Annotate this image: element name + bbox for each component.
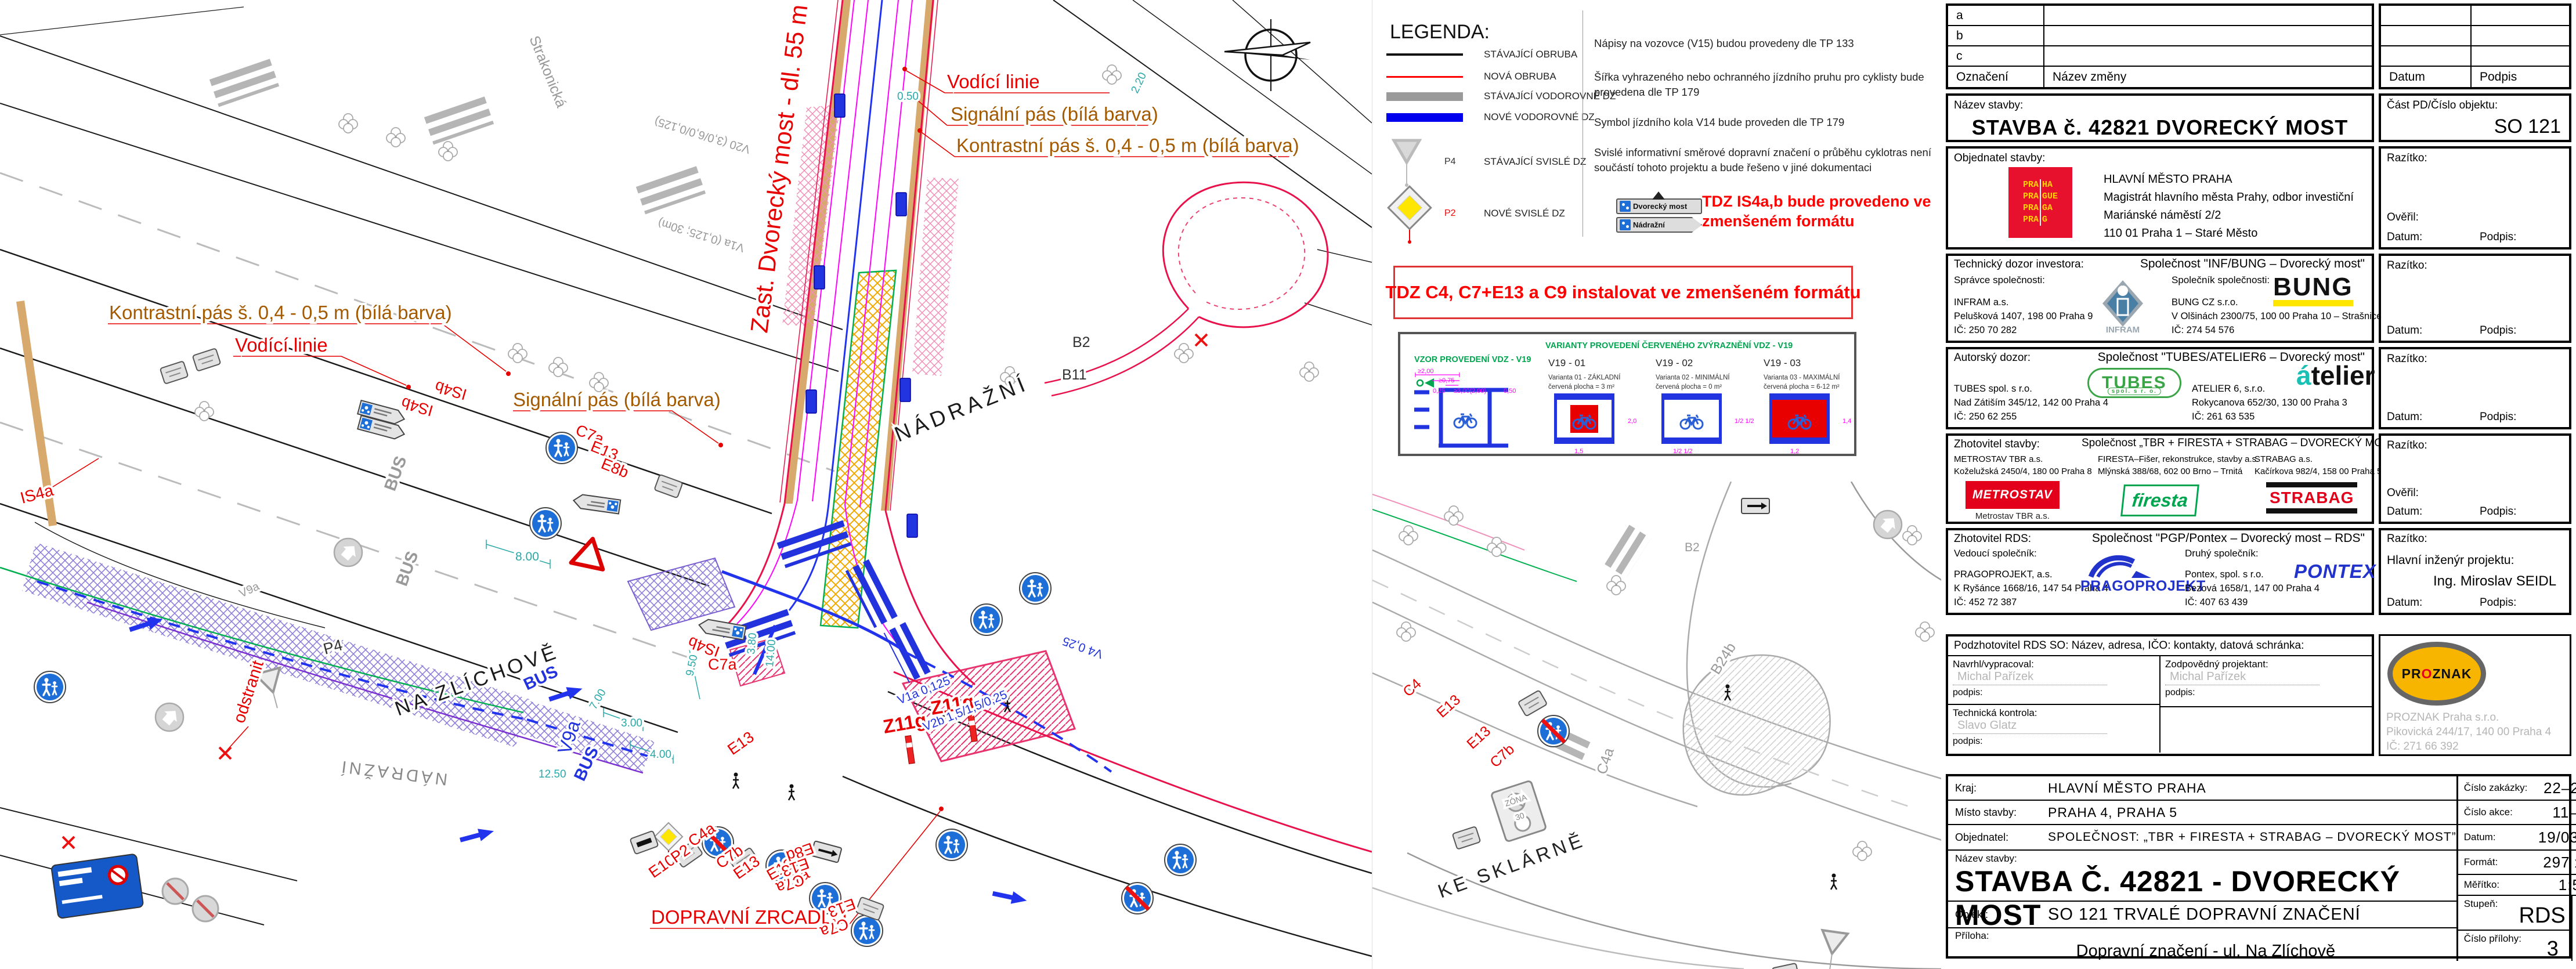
metrostav-logo: METROSTAV Metrostav TBR a.s.	[1966, 481, 2060, 521]
change-row-id: c	[1948, 46, 2044, 66]
traffic-sign-ped-icon	[971, 604, 1002, 635]
traffic-sign-pedx-icon	[1122, 883, 1153, 914]
variant-02-diagram	[1656, 393, 1731, 451]
traffic-sign-plate-icon	[193, 348, 221, 371]
traffic-sign-plate2-icon	[630, 831, 658, 855]
signature-label: Podpis:	[2480, 231, 2516, 244]
object-number: SO 121	[2494, 115, 2561, 138]
stamp-label: Razítko:	[2387, 259, 2427, 272]
traffic-sign-pedx-icon	[1538, 715, 1569, 747]
traffic-sign-redtri-icon	[571, 536, 609, 570]
traffic-sign-ped-icon	[936, 829, 967, 860]
drawing-label: C7b	[1487, 741, 1518, 771]
second-partner-label: Druhý společník:	[2185, 548, 2259, 559]
traffic-sign-tree-icon	[1300, 362, 1318, 381]
existing-curb-line-swatch	[1386, 53, 1463, 56]
drawing-label: odstranit	[230, 658, 268, 725]
info-sign-blue	[51, 854, 143, 919]
drawing-label: B2	[1072, 334, 1090, 350]
variant-desc: červená plocha = 3 m²	[1548, 383, 1614, 392]
sample-dim: ≥3,00(2,00)	[1454, 388, 1486, 395]
new-horizontal-swatch	[1386, 113, 1463, 122]
legend-title: LEGENDA:	[1390, 21, 1490, 44]
traffic-sign-man-icon	[789, 784, 794, 801]
note-cycle-lane-width: Šířka vyhrazeného nebo ochranného jízdní…	[1594, 70, 1934, 100]
drawing-label: B2	[1685, 541, 1700, 554]
v19-sample-title: VZOR PROVEDENÍ VDZ - V19	[1414, 355, 1531, 364]
title-block-panel: a b c OznačeníNázev změny DatumPodpis Ná…	[1941, 0, 2576, 969]
drawing-label: C4a	[1594, 746, 1617, 776]
firm-line: IČ: 261 63 535	[2192, 410, 2347, 424]
drawing-label: BUS	[381, 454, 411, 493]
firm-line: IČ: 274 54 576	[2172, 323, 2382, 337]
traffic-sign-tree-icon	[1487, 537, 1506, 556]
scale-value: 1:500	[2538, 876, 2576, 894]
date-label: Datum:	[2387, 411, 2422, 424]
drafted-by-label: Navrhl/vypracoval:	[1953, 659, 2155, 670]
traffic-sign-dirgray-icon	[156, 703, 183, 731]
legend-item-new-vertical: P2 NOVÉ SVISLÉ DZ	[1386, 185, 1565, 243]
traffic-sign-xr-icon	[63, 837, 74, 848]
change-row-id: a	[1948, 6, 2044, 25]
drawing-label: E13	[1433, 692, 1464, 721]
traffic-sign-tree-icon	[339, 114, 357, 133]
date-label: Datum:	[2387, 231, 2422, 244]
v19-variants-title: VARIANTY PROVEDENÍ ČERVENÉHO ZVÝRAZNĚNÍ …	[1545, 341, 1793, 350]
bung-logo: BUNG	[2273, 276, 2353, 306]
firm-line: TUBES spol. s r.o.	[1954, 382, 2108, 396]
traffic-sign-plate-icon	[1772, 963, 1800, 969]
client-line: 110 01 Praha 1 – Staré Město	[2104, 225, 2354, 243]
bike-pictogram-icon	[1620, 201, 1631, 212]
verified-label: Ověřil:	[2387, 211, 2419, 224]
technical-check-label: Technická kontrola:	[1953, 707, 2155, 719]
legend-item-existing-horizontal: STÁVAJÍCÍ VODOROVNÉ DZ	[1386, 91, 1616, 102]
traffic-sign-bluerect-icon	[900, 378, 911, 402]
traffic-sign-man-icon	[1831, 874, 1837, 890]
drawing-label: Vodící linie	[947, 71, 1040, 92]
project-name-section: Název stavby: STAVBA č. 42821 DVORECKÝ M…	[1946, 93, 2571, 142]
direction-sign-nadrazni: Nádražní	[1616, 217, 1702, 233]
client2-label: Objednatel:	[1955, 831, 2048, 844]
sample-dim: 0,50	[1504, 388, 1516, 395]
traffic-sign-xr-icon	[219, 747, 231, 759]
client-line: Mariánské náměstí 2/2	[2104, 207, 2354, 225]
change-col-podpis: Podpis	[2472, 67, 2569, 87]
traffic-sign-ped-icon	[530, 508, 561, 539]
traffic-sign-tree-icon	[1903, 526, 1921, 545]
contractor-label: Zhotovitel stavby:	[1954, 438, 2040, 451]
author-supervision-label: Autorský dozor:	[1954, 352, 2031, 364]
firm-line: IČ: 452 72 387	[1954, 595, 2108, 609]
stamp-label: Razítko:	[2387, 152, 2427, 165]
note-v14: Symbol jízdního kola V14 bude proveden d…	[1594, 115, 1934, 130]
variant-code: V19 - 01	[1548, 357, 1585, 369]
note-cycle-routes: Svislé informativní směrové dopravní zna…	[1594, 145, 1934, 175]
object-value: SO 121 TRVALÉ DOPRAVNÍ ZNAČENÍ	[2048, 905, 2361, 924]
drawing-label: Signální pás (bílá barva)	[951, 103, 1158, 125]
firesta-logo: firesta	[2120, 484, 2199, 516]
client-section: Objednatel stavby: PRAHA PRAGUE PRAGA PR…	[1946, 146, 2571, 250]
object-label: Objekt:	[1955, 909, 2048, 921]
tech-supervision-company: Společnost "INF/BUNG – Dvorecký most"	[2140, 257, 2365, 271]
attachment-number-value: 3	[2547, 937, 2559, 961]
traffic-sign-ped-icon	[1020, 573, 1051, 604]
plan-drawing-panel: Vodící linieSignální pás (bílá barva)Kon…	[0, 0, 1372, 969]
partner-label: Společník společnosti:	[2172, 274, 2270, 286]
traffic-sign-arr-icon	[991, 887, 1028, 907]
date-label: Datum:	[2387, 324, 2422, 337]
atelier6-logo: átelier	[2296, 362, 2375, 389]
date2-label: Datum:	[2458, 831, 2538, 843]
responsible-designer-name: Michal Pařízek	[2165, 670, 2320, 685]
drawing-label: Signální pás (bílá barva)	[513, 389, 721, 410]
traffic-sign-man-icon	[733, 773, 739, 789]
variant-dim: 1,4	[1842, 418, 1851, 425]
plan-drawing: Vodící linieSignální pás (bílá barva)Kon…	[0, 0, 1372, 969]
date-label: Datum:	[2387, 596, 2422, 609]
firm-line: FIRESTA–Fišer, rekonstrukce, stavby a.s.	[2098, 453, 2259, 465]
author-supervision-section: Autorský dozor: Společnost "TUBES/ATELIE…	[1946, 347, 2571, 429]
legend-item-new-horizontal: NOVÉ VODOROVNÉ DZ	[1386, 111, 1595, 123]
attachment-label: Příloha:	[1955, 930, 2456, 942]
subcontractor-firm-line: IČ: 271 66 392	[2386, 739, 2551, 754]
traffic-sign-bluerect-icon	[907, 514, 917, 537]
subcontractor-header: Podzhotovitel RDS SO: Název, adresa, IČO…	[1948, 637, 2372, 656]
project-name: STAVBA č. 42821 DVORECKÝ MOST	[1948, 115, 2372, 140]
drawing-label: V4 0,25	[1061, 634, 1105, 661]
rds-company: Společnost "PGP/Pontex – Dvorecký most –…	[2092, 531, 2365, 545]
traffic-sign-plate-icon	[1453, 826, 1481, 849]
traffic-sign-plate-icon	[160, 361, 189, 384]
firm-line: IČ: 250 62 255	[1954, 410, 2108, 424]
traffic-sign-tree-icon	[549, 357, 568, 377]
existing-state-drawing: KE SKLÁRNĚC4aC7bE13E13C4B24bZÓNA30B2	[1372, 482, 1942, 969]
plan-sheet: { "drawing": { "labels": [ {"t":"Vodící …	[0, 0, 2576, 969]
sample-dim: 0,25	[1433, 388, 1445, 395]
sheet-info-block: Kraj:HLAVNÍ MĚSTO PRAHA Místo stavby:PRA…	[1946, 774, 2571, 959]
sample-dim: ≥0,75	[1439, 377, 1454, 384]
drawing-label: V1a (0,125; 30m)	[656, 216, 746, 254]
change-row-id: b	[1948, 26, 2044, 45]
traffic-sign-bol-icon	[905, 736, 915, 764]
stage-label: Stupeň:	[2464, 898, 2498, 910]
proznak-logo: PROZNAK	[2387, 642, 2486, 706]
drawing-label: NÁDRAŽNÍ	[891, 371, 1032, 447]
note-v15: Nápisy na vozovce (V15) budou provedeny …	[1594, 36, 1934, 51]
order-number-value: 22–211–3	[2538, 779, 2576, 797]
tech-supervision-label: Technický dozor investora:	[1954, 258, 2084, 271]
signature-label: Podpis:	[2480, 411, 2516, 424]
legend-item-existing-curb: STÁVAJÍCÍ OBRUBA	[1386, 49, 1577, 60]
traffic-sign-tree-icon	[1103, 65, 1121, 84]
action-number-value: 11–358	[2538, 804, 2576, 822]
drawing-label: 2.20	[1129, 71, 1149, 95]
drawing-label: E13	[1464, 723, 1494, 753]
variant-dim: 1,2	[1790, 448, 1799, 455]
site-label: Místo stavby:	[1955, 807, 2048, 819]
responsible-designer-label: Zodpovědný projektant:	[2165, 659, 2367, 670]
tubes-logo: TUBES spol. s r. o.	[2087, 368, 2181, 398]
technical-check-name: Slavo Glatz	[1953, 719, 2107, 734]
prohibition-signs-gray	[162, 878, 218, 921]
change-table: a b c OznačeníNázev změny	[1946, 3, 2374, 89]
traffic-sign-dirplate-icon	[1742, 498, 1769, 514]
subcontractor-firm-line: PROZNAK Praha s.r.o.	[2386, 710, 2551, 725]
drawing-label: V9a	[237, 580, 262, 600]
change-table-section: a b c OznačeníNázev změny DatumPodpis	[1946, 3, 2571, 89]
variant-dim: 1,5	[1574, 448, 1583, 455]
drawing-label: 3.00	[621, 717, 642, 729]
date-label: Datum:	[2387, 505, 2422, 518]
red-note-is4ab: TDZ IS4a,b bude provedeno ve zmenšeném f…	[1702, 191, 1934, 231]
north-arrow-icon	[1224, 19, 1310, 91]
direction-sign-samples: Dvorecký most Nádražní	[1616, 198, 1703, 236]
existing-horizontal-swatch	[1386, 92, 1463, 101]
drawing-label: C7a	[708, 656, 738, 673]
drawing-label: B11	[1062, 367, 1087, 383]
rds-contractor-section: Zhotovitel RDS: Společnost "PGP/Pontex –…	[1946, 528, 2571, 615]
drawing-labels-layer: Vodící linieSignální pás (bílá barva)Kon…	[19, 3, 1299, 941]
firm-line: Mlýnská 388/68, 602 00 Brno – Trnitá	[2098, 465, 2259, 478]
drawing-label: BUS	[393, 549, 422, 588]
drawing-label: Kontrastní pás š. 0,4 - 0,5 m (bílá barv…	[956, 135, 1299, 156]
variant-desc: Varianta 01 - ZÁKLADNÍ	[1548, 374, 1620, 382]
praha-logo: PRAHA PRAGUE PRAGA PRAG	[2008, 167, 2072, 238]
traffic-sign-tree-icon	[1607, 576, 1625, 595]
legend-divider	[1583, 10, 1583, 237]
variant-code: V19 - 02	[1656, 357, 1693, 369]
firm-line: Kačírkova 982/4, 158 00 Praha 5	[2255, 465, 2382, 478]
attachment-value: Dopravní značení - ul. Na Zlíchově	[1955, 942, 2456, 961]
firm-line: INFRAM a.s.	[1954, 295, 2093, 309]
drawing-label: 0.50	[897, 91, 919, 103]
subcontractor-section: Podzhotovitel RDS SO: Název, adresa, IČO…	[1946, 634, 2571, 756]
drawing-label: DOPRAVNÍ ZRCADLO	[651, 906, 847, 928]
red-note-box: TDZ C4, C7+E13 a C9 instalovat ve zmenše…	[1393, 266, 1853, 319]
variant-desc: Varianta 03 - MAXIMÁLNÍ	[1764, 374, 1840, 382]
action-number-label: Číslo akce:	[2458, 807, 2538, 818]
variant-03-diagram	[1764, 393, 1839, 451]
traffic-sign-tree-icon	[1444, 506, 1463, 525]
drawing-label: IS4b	[399, 394, 435, 420]
variant-code: V19 - 03	[1764, 357, 1801, 369]
date2-value: 19/03/2026	[2538, 829, 2576, 847]
firm-line: IČ: 250 70 282	[1954, 323, 2093, 337]
drawing-label: E8b	[599, 455, 631, 482]
infram-logo: INFRAM	[2100, 278, 2145, 334]
traffic-sign-tree-icon	[386, 128, 405, 147]
drawing-label: 4.00	[650, 749, 671, 761]
traffic-sign-plate-icon	[1518, 690, 1547, 716]
bike-pictogram-icon	[1620, 219, 1631, 230]
traffic-sign-tree-icon	[1916, 622, 1934, 641]
change-table-datum-podpis: DatumPodpis	[2379, 3, 2571, 89]
region-label: Kraj:	[1955, 782, 2048, 794]
drawing-label: Kontrastní pás š. 0,4 - 0,5 m (bílá barv…	[109, 302, 452, 323]
legend-item-existing-vertical: P4 STÁVAJÍCÍ SVISLÉ DZ	[1386, 136, 1586, 188]
firm-line: METROSTAV TBR a.s.	[1954, 453, 2092, 465]
change-col-nazev: Název změny	[2044, 67, 2372, 87]
technical-supervision-section: Technický dozor investora: Společnost "I…	[1946, 254, 2571, 343]
drawing-label: NÁDRAŽNÍ	[338, 757, 449, 789]
client-line: HLAVNÍ MĚSTO PRAHA	[2104, 171, 2354, 189]
object-number-label: Část PD/Číslo objektu:	[2387, 99, 2498, 112]
change-col-oznaceni: Označení	[1948, 67, 2044, 87]
format-label: Formát:	[2458, 856, 2538, 868]
subcontractor-firm-line: Pikovická 244/17, 140 00 Praha 4	[2386, 725, 2551, 739]
change-col-datum: Datum	[2381, 67, 2472, 87]
firm-line: Bezová 1658/1, 147 00 Praha 4	[2185, 581, 2320, 595]
project-title-label: Název stavby:	[1955, 853, 2456, 865]
client-line: Magistrát hlavního města Prahy, odbor in…	[2104, 189, 2354, 207]
legend-item-new-curb: NOVÁ OBRUBA	[1386, 71, 1556, 82]
firm-line: STRABAG a.s.	[2255, 453, 2382, 465]
drawing-label: E13	[724, 728, 757, 758]
v19-variants-box: VZOR PROVEDENÍ VDZ - V19 VARIANTY PROVED…	[1398, 332, 1856, 456]
traffic-sign-arr-icon	[458, 825, 496, 847]
traffic-sign-ped-icon	[34, 671, 66, 703]
traffic-sign-tree-icon	[1399, 526, 1418, 545]
drafted-by-name: Michal Pařízek	[1953, 670, 2107, 685]
traffic-sign-tree-icon	[439, 142, 457, 161]
stamp-label: Razítko:	[2387, 353, 2427, 366]
contractor-section: Zhotovitel stavby: Společnost „TBR + FIR…	[1946, 433, 2571, 524]
signature-label: Podpis:	[2480, 324, 2516, 337]
drawing-label: Vodící linie	[235, 334, 328, 356]
signature-label: podpis:	[1953, 736, 2155, 747]
drawing-label: 8.00	[515, 550, 539, 563]
strabag-logo: STRABAG	[2266, 482, 2357, 514]
traffic-sign-plate-icon	[654, 475, 682, 498]
variant-desc: červená plocha = 0 m²	[1656, 383, 1722, 392]
lead-partner-label: Vedoucí společník:	[1954, 548, 2037, 559]
format-value: 297 x 765	[2538, 854, 2576, 872]
traffic-sign-ped-icon	[1165, 844, 1196, 876]
drawing-label: V20 (3,0/6,0/0,125)	[653, 114, 752, 156]
traffic-sign-is4-icon	[573, 494, 621, 514]
drawing-label: 12.50	[539, 768, 566, 780]
variant-dim: 1/2 1/2	[1735, 418, 1754, 425]
attachment-number-label: Číslo přílohy:	[2464, 933, 2521, 945]
client-label: Objednatel stavby:	[1954, 152, 2045, 165]
traffic-sign-tree-icon	[195, 402, 214, 421]
traffic-sign-xr-icon	[1195, 334, 1207, 346]
client2-value: SPOLEČNOST: „TBR + FIRESTA + STRABAG – D…	[2048, 830, 2456, 844]
direction-sign-dvorecky-most: Dvorecký most	[1616, 198, 1702, 214]
drawing-label: Strakonická	[526, 34, 569, 110]
traffic-sign-tree-icon	[1853, 841, 1872, 860]
v19-sample-diagram	[1408, 370, 1533, 454]
chief-engineer-name: Ing. Miroslav SEIDL	[2433, 573, 2556, 590]
signature-label: podpis:	[1953, 688, 2155, 698]
arrow-up-icon	[1652, 191, 1665, 200]
drawing-label: Z11g	[881, 708, 928, 737]
variant-desc: červená plocha = 6-12 m²	[1764, 383, 1840, 392]
variant-desc: Varianta 02 - MINIMÁLNÍ	[1656, 374, 1730, 382]
legend-panel: LEGENDA: STÁVAJÍCÍ OBRUBA NOVÁ OBRUBA ST…	[1372, 0, 1941, 969]
signature-label: podpis:	[2165, 688, 2367, 698]
contractor-company: Společnost „TBR + FIRESTA + STRABAG – DV…	[2082, 437, 2401, 450]
traffic-sign-arr-icon	[547, 682, 584, 705]
sample-dim: ≥2,00	[1418, 368, 1433, 375]
site-value: PRAHA 4, PRAHA 5	[2048, 805, 2177, 820]
variant-dim: 1/2 1/2	[1673, 448, 1693, 455]
order-number-label: Číslo zakázky:	[2458, 782, 2538, 794]
firm-line: IČ: 407 63 439	[2185, 595, 2320, 609]
new-curb-line-swatch	[1386, 76, 1463, 78]
verified-label: Ověřil:	[2387, 487, 2419, 500]
traffic-sign-dirplate-icon	[811, 841, 841, 863]
drawing-label: C4	[1400, 675, 1425, 700]
firm-line: Rokycanova 652/30, 130 00 Praha 3	[2192, 396, 2347, 410]
chief-engineer-label: Hlavní inženýr projektu:	[2387, 554, 2514, 567]
signature-label: Podpis:	[2480, 596, 2516, 609]
red-note-box-text: TDZ C4, C7+E13 a C9 instalovat ve zmenše…	[1385, 282, 1860, 303]
variant-01-diagram	[1548, 393, 1624, 451]
stamp-label: Razítko:	[2387, 533, 2427, 545]
firm-line: Nad Zátiším 345/12, 142 00 Praha 4	[1954, 396, 2108, 410]
scale-label: Měřítko:	[2458, 879, 2538, 891]
stage-value: RDS	[2519, 903, 2566, 928]
signature-label: Podpis:	[2480, 505, 2516, 518]
drawing-label: 14.00	[764, 639, 778, 667]
traffic-sign-dirgray-icon	[1874, 511, 1902, 538]
administrator-label: Správce společnosti:	[1954, 274, 2045, 286]
stamp-label: Razítko:	[2387, 439, 2427, 452]
traffic-sign-bluerect-icon	[814, 266, 825, 289]
rds-contractor-label: Zhotovitel RDS:	[1954, 533, 2031, 545]
drawing-label: 3.80	[745, 632, 759, 655]
firm-line: V Olšinách 2300/75, 100 00 Praha 10 – St…	[2172, 309, 2382, 323]
firm-line: Pelušková 1407, 198 00 Praha 9	[1954, 309, 2093, 323]
traffic-sign-bluerect-icon	[896, 193, 906, 216]
traffic-sign-dirgray-icon	[334, 538, 362, 566]
firm-line: Koželužská 2450/4, 180 00 Praha 8	[1954, 465, 2092, 478]
region-value: HLAVNÍ MĚSTO PRAHA	[2048, 780, 2206, 796]
traffic-sign-tree-icon	[1175, 344, 1193, 363]
project-name-label: Název stavby:	[1954, 99, 2023, 112]
svg-text:INFRAM: INFRAM	[2106, 325, 2140, 334]
variant-dim: 2,0	[1628, 418, 1636, 425]
traffic-sign-tree-icon	[1397, 622, 1415, 641]
traffic-sign-bluerect-icon	[834, 94, 845, 117]
traffic-sign-bluerect-icon	[806, 390, 816, 413]
